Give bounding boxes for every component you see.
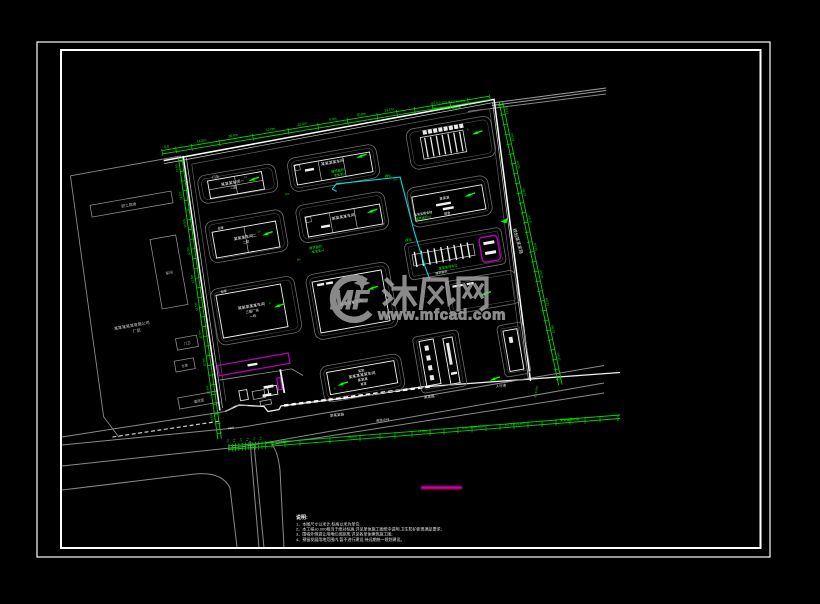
svg-text:www.mfcad.com: www.mfcad.com — [377, 307, 506, 324]
svg-text:45.0m: 45.0m — [348, 434, 357, 439]
svg-text:说明:: 说明: — [296, 514, 308, 521]
svg-text:2、本工程±0.000相当于绝对标高,详见单体施工图纸中说明: 2、本工程±0.000相当于绝对标高,详见单体施工图纸中说明,卫生防护距离满足要… — [296, 526, 442, 532]
svg-text:14.8m: 14.8m — [418, 429, 427, 434]
svg-text:MF: MF — [330, 285, 370, 315]
svg-text:4、预留发展用地范围内,暂不进行建设,待远期统一规划建设。: 4、预留发展用地范围内,暂不进行建设,待远期统一规划建设。 — [296, 536, 404, 542]
svg-text:1、本图尺寸以米计,标高以米为单位;: 1、本图尺寸以米计,标高以米为单位; — [296, 520, 360, 526]
svg-text:3、围墙外侧退让用地红线距离,详见各单体建筑施工图;: 3、围墙外侧退让用地红线距离,详见各单体建筑施工图; — [296, 531, 392, 537]
